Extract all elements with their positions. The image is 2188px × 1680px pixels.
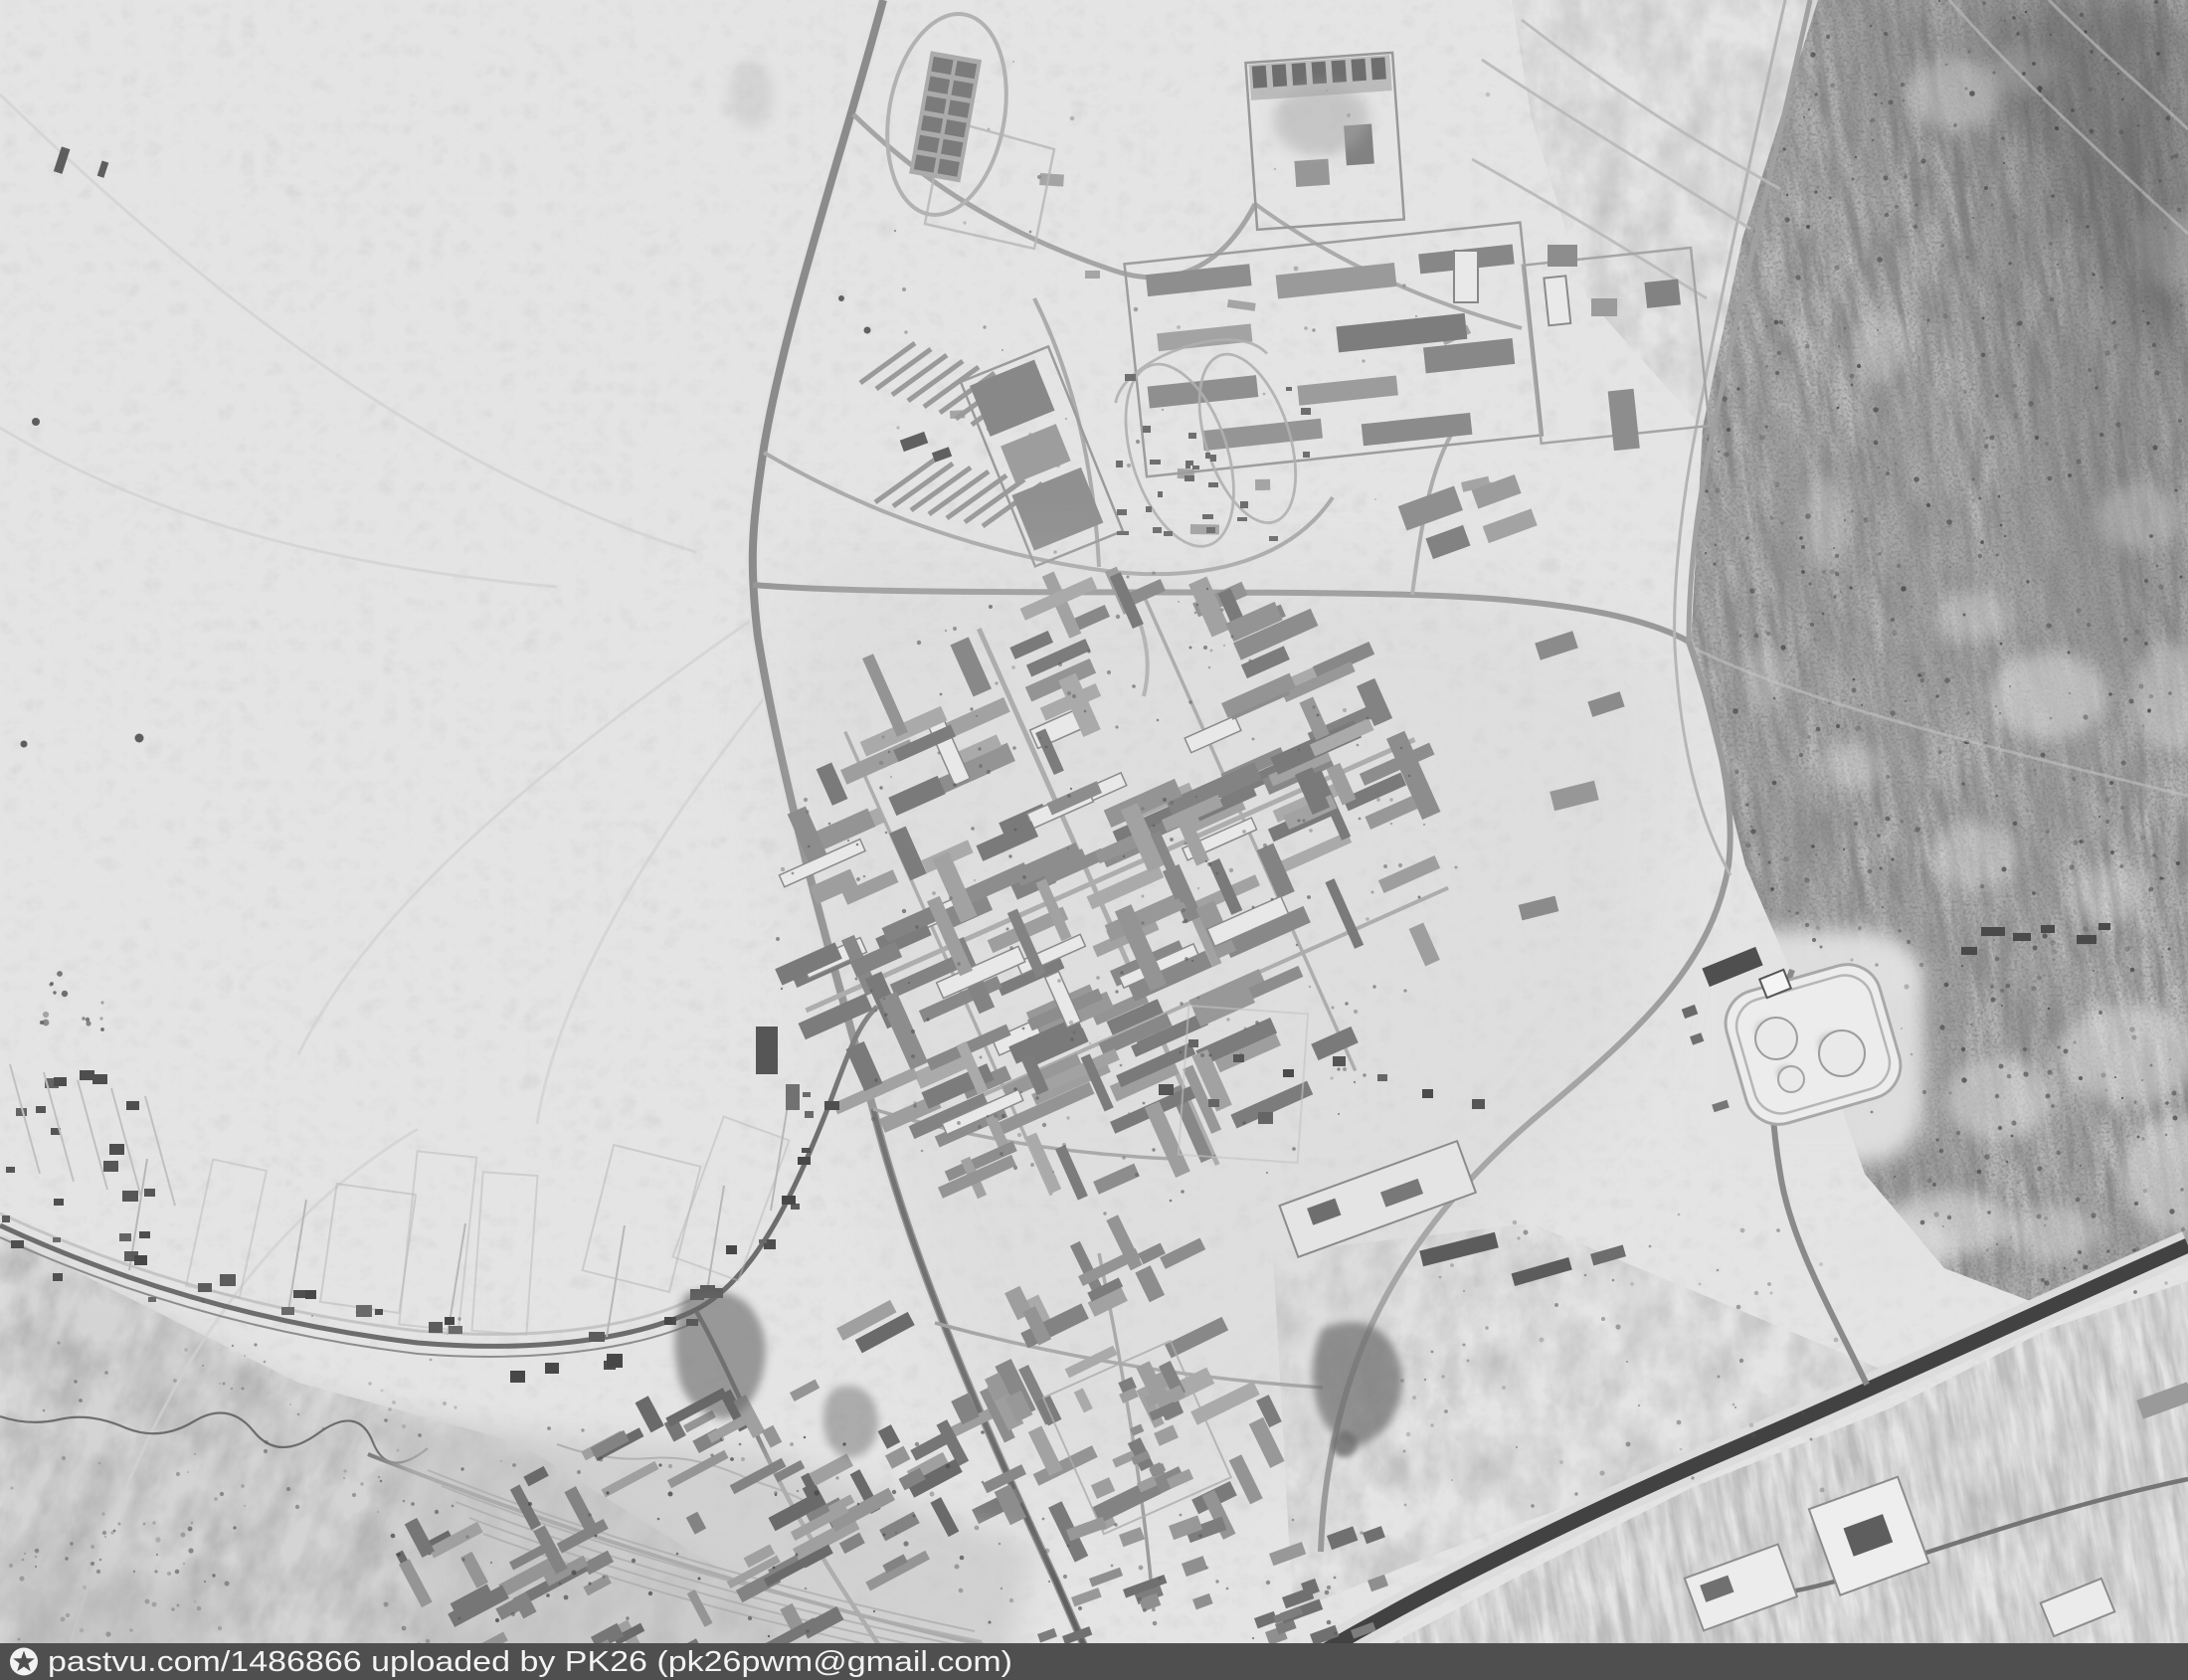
- svg-text:pastvu.com/1486866 uploaded b: pastvu.com/1486866 uploaded by PK26 (pk2…: [48, 1646, 1012, 1678]
